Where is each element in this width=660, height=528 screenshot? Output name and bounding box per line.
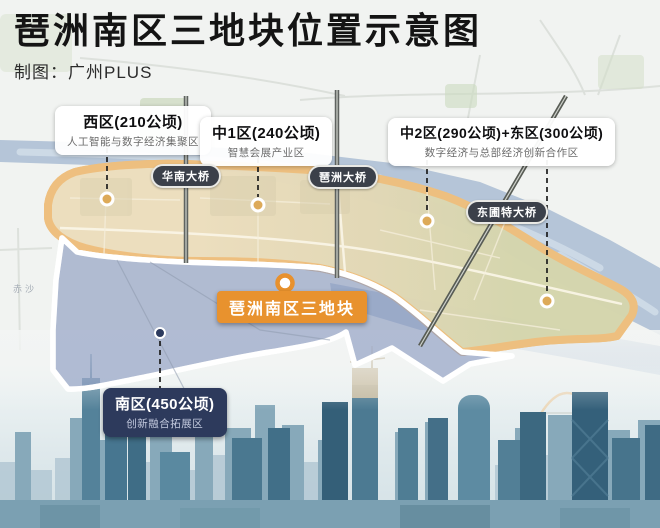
pazhou-south-highlight-label: 琶洲南区三地块 [217, 291, 367, 323]
central1-zone-marker [252, 199, 264, 211]
central2-east-zone-label-box: 中2区(290公顷)+东区(300公顷) 数字经济与总部经济创新合作区 [388, 118, 615, 166]
central2-east-zone-title: 中2区(290公顷)+东区(300公顷) [400, 123, 603, 143]
central1-zone-subtitle: 智慧会展产业区 [212, 145, 320, 160]
central2-zone-marker [421, 215, 433, 227]
central1-zone-label-box: 中1区(240公顷) 智慧会展产业区 [200, 117, 332, 166]
south-zone-title: 南区(450公顷) [115, 393, 215, 414]
east-zone-marker [541, 295, 553, 307]
central2-east-zone-subtitle: 数字经济与总部经济创新合作区 [400, 145, 603, 160]
dongpu-bridge-pill: 东圃特大桥 [466, 200, 548, 224]
west-zone-label-box: 西区(210公顷) 人工智能与数字经济集聚区 [55, 106, 211, 155]
west-zone-title: 西区(210公顷) [67, 111, 199, 132]
huanan-bridge-pill: 华南大桥 [151, 164, 221, 188]
west-zone-marker [101, 193, 113, 205]
header: 琶洲南区三地块位置示意图 制图：广州PLUS [14, 10, 482, 83]
page-title: 琶洲南区三地块位置示意图 [14, 10, 482, 51]
pazhou-south-marker [278, 276, 293, 291]
south-zone-label-box: 南区(450公顷) 创新融合拓展区 [103, 388, 227, 437]
south-zone-subtitle: 创新融合拓展区 [115, 416, 215, 431]
infographic-canvas: 赤沙 琶洲南区三地块位置示意图 制图：广州PLUS 西区(210公顷) 人工智能… [0, 0, 660, 528]
west-zone-subtitle: 人工智能与数字经济集聚区 [67, 134, 199, 149]
south-zone-marker [155, 328, 165, 338]
pazhou-bridge-pill: 琶洲大桥 [308, 165, 378, 189]
map-label-chisha: 赤沙 [13, 284, 37, 294]
central1-zone-title: 中1区(240公顷) [212, 122, 320, 143]
credit-line: 制图：广州PLUS [14, 58, 482, 83]
